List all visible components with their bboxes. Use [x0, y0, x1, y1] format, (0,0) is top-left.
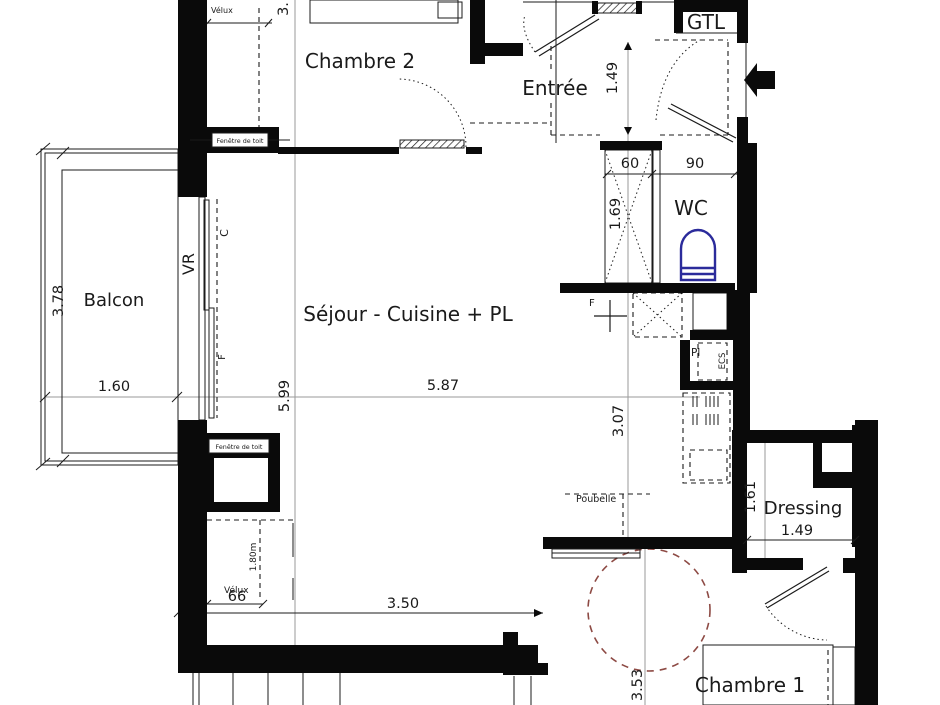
- room-label-gtl: GTL: [687, 10, 726, 34]
- door-entree-chambre2: [524, 15, 599, 56]
- dim-cuisine-h: 3.07: [611, 405, 627, 437]
- label-poubelle: Poubelle: [576, 494, 616, 505]
- dim-sejour-bas: 3.50: [387, 596, 419, 612]
- label-velux-bottom: Vélux: [224, 585, 249, 596]
- label-pl: Pl: [691, 347, 700, 359]
- dim-balcon-h: 3.78: [51, 285, 67, 317]
- label-f-wall: F: [589, 298, 595, 309]
- floor-plan-page: Chambre 2 Entrée GTL WC Balcon Séjour - …: [0, 0, 940, 705]
- dim-hall-h: 3.53: [630, 669, 646, 701]
- labels: Chambre 2 Entrée GTL WC Balcon Séjour - …: [51, 2, 842, 701]
- label-ecs: ECS: [718, 353, 728, 370]
- label-h180: 1.80m: [249, 543, 259, 572]
- dim-entree-h: 1.49: [605, 62, 621, 94]
- dim-line-350: [174, 609, 543, 617]
- door-wc: [656, 40, 736, 142]
- label-fenetre-toit-bottom: Fenêtre de toit: [216, 443, 263, 451]
- label-velux-top: Vélux: [211, 5, 233, 15]
- dim-sejour-h: 5.99: [277, 380, 293, 412]
- dim-top-cut: 3.: [276, 2, 292, 16]
- label-f-window: F: [217, 354, 228, 360]
- room-label-wc: WC: [674, 196, 708, 220]
- dim-dressing-h: 1.61: [743, 481, 759, 513]
- room-label-chambre1: Chambre 1: [695, 673, 805, 697]
- chambre2-furniture: [192, 0, 556, 147]
- room-label-balcon: Balcon: [84, 290, 145, 311]
- room-label-chambre2: Chambre 2: [305, 49, 415, 73]
- entry-arrow-icon: [744, 63, 775, 97]
- turning-circle: [588, 549, 710, 671]
- door-hall: [765, 567, 829, 640]
- room-label-sejour: Séjour - Cuisine + PL: [303, 302, 513, 326]
- label-vr: VR: [179, 253, 198, 275]
- label-fenetre-toit-top: Fenêtre de toit: [217, 137, 264, 145]
- floor-plan: Chambre 2 Entrée GTL WC Balcon Séjour - …: [0, 0, 940, 705]
- room-label-dressing: Dressing: [764, 498, 843, 519]
- toilet-icon: [681, 230, 715, 280]
- dim-balcon-w: 1.60: [98, 379, 130, 395]
- dim-wc-w: 90: [686, 156, 704, 172]
- dim-sejour-w: 5.87: [427, 378, 459, 394]
- dim-closet-h: 1.69: [608, 198, 624, 230]
- room-label-entree: Entrée: [522, 76, 588, 100]
- dim-dressing-w: 1.49: [781, 523, 813, 539]
- label-c: C: [218, 229, 231, 237]
- kitchen-hatch-marks: [693, 396, 718, 425]
- bay-window: [199, 197, 217, 420]
- dim-closet-w: 60: [621, 156, 639, 172]
